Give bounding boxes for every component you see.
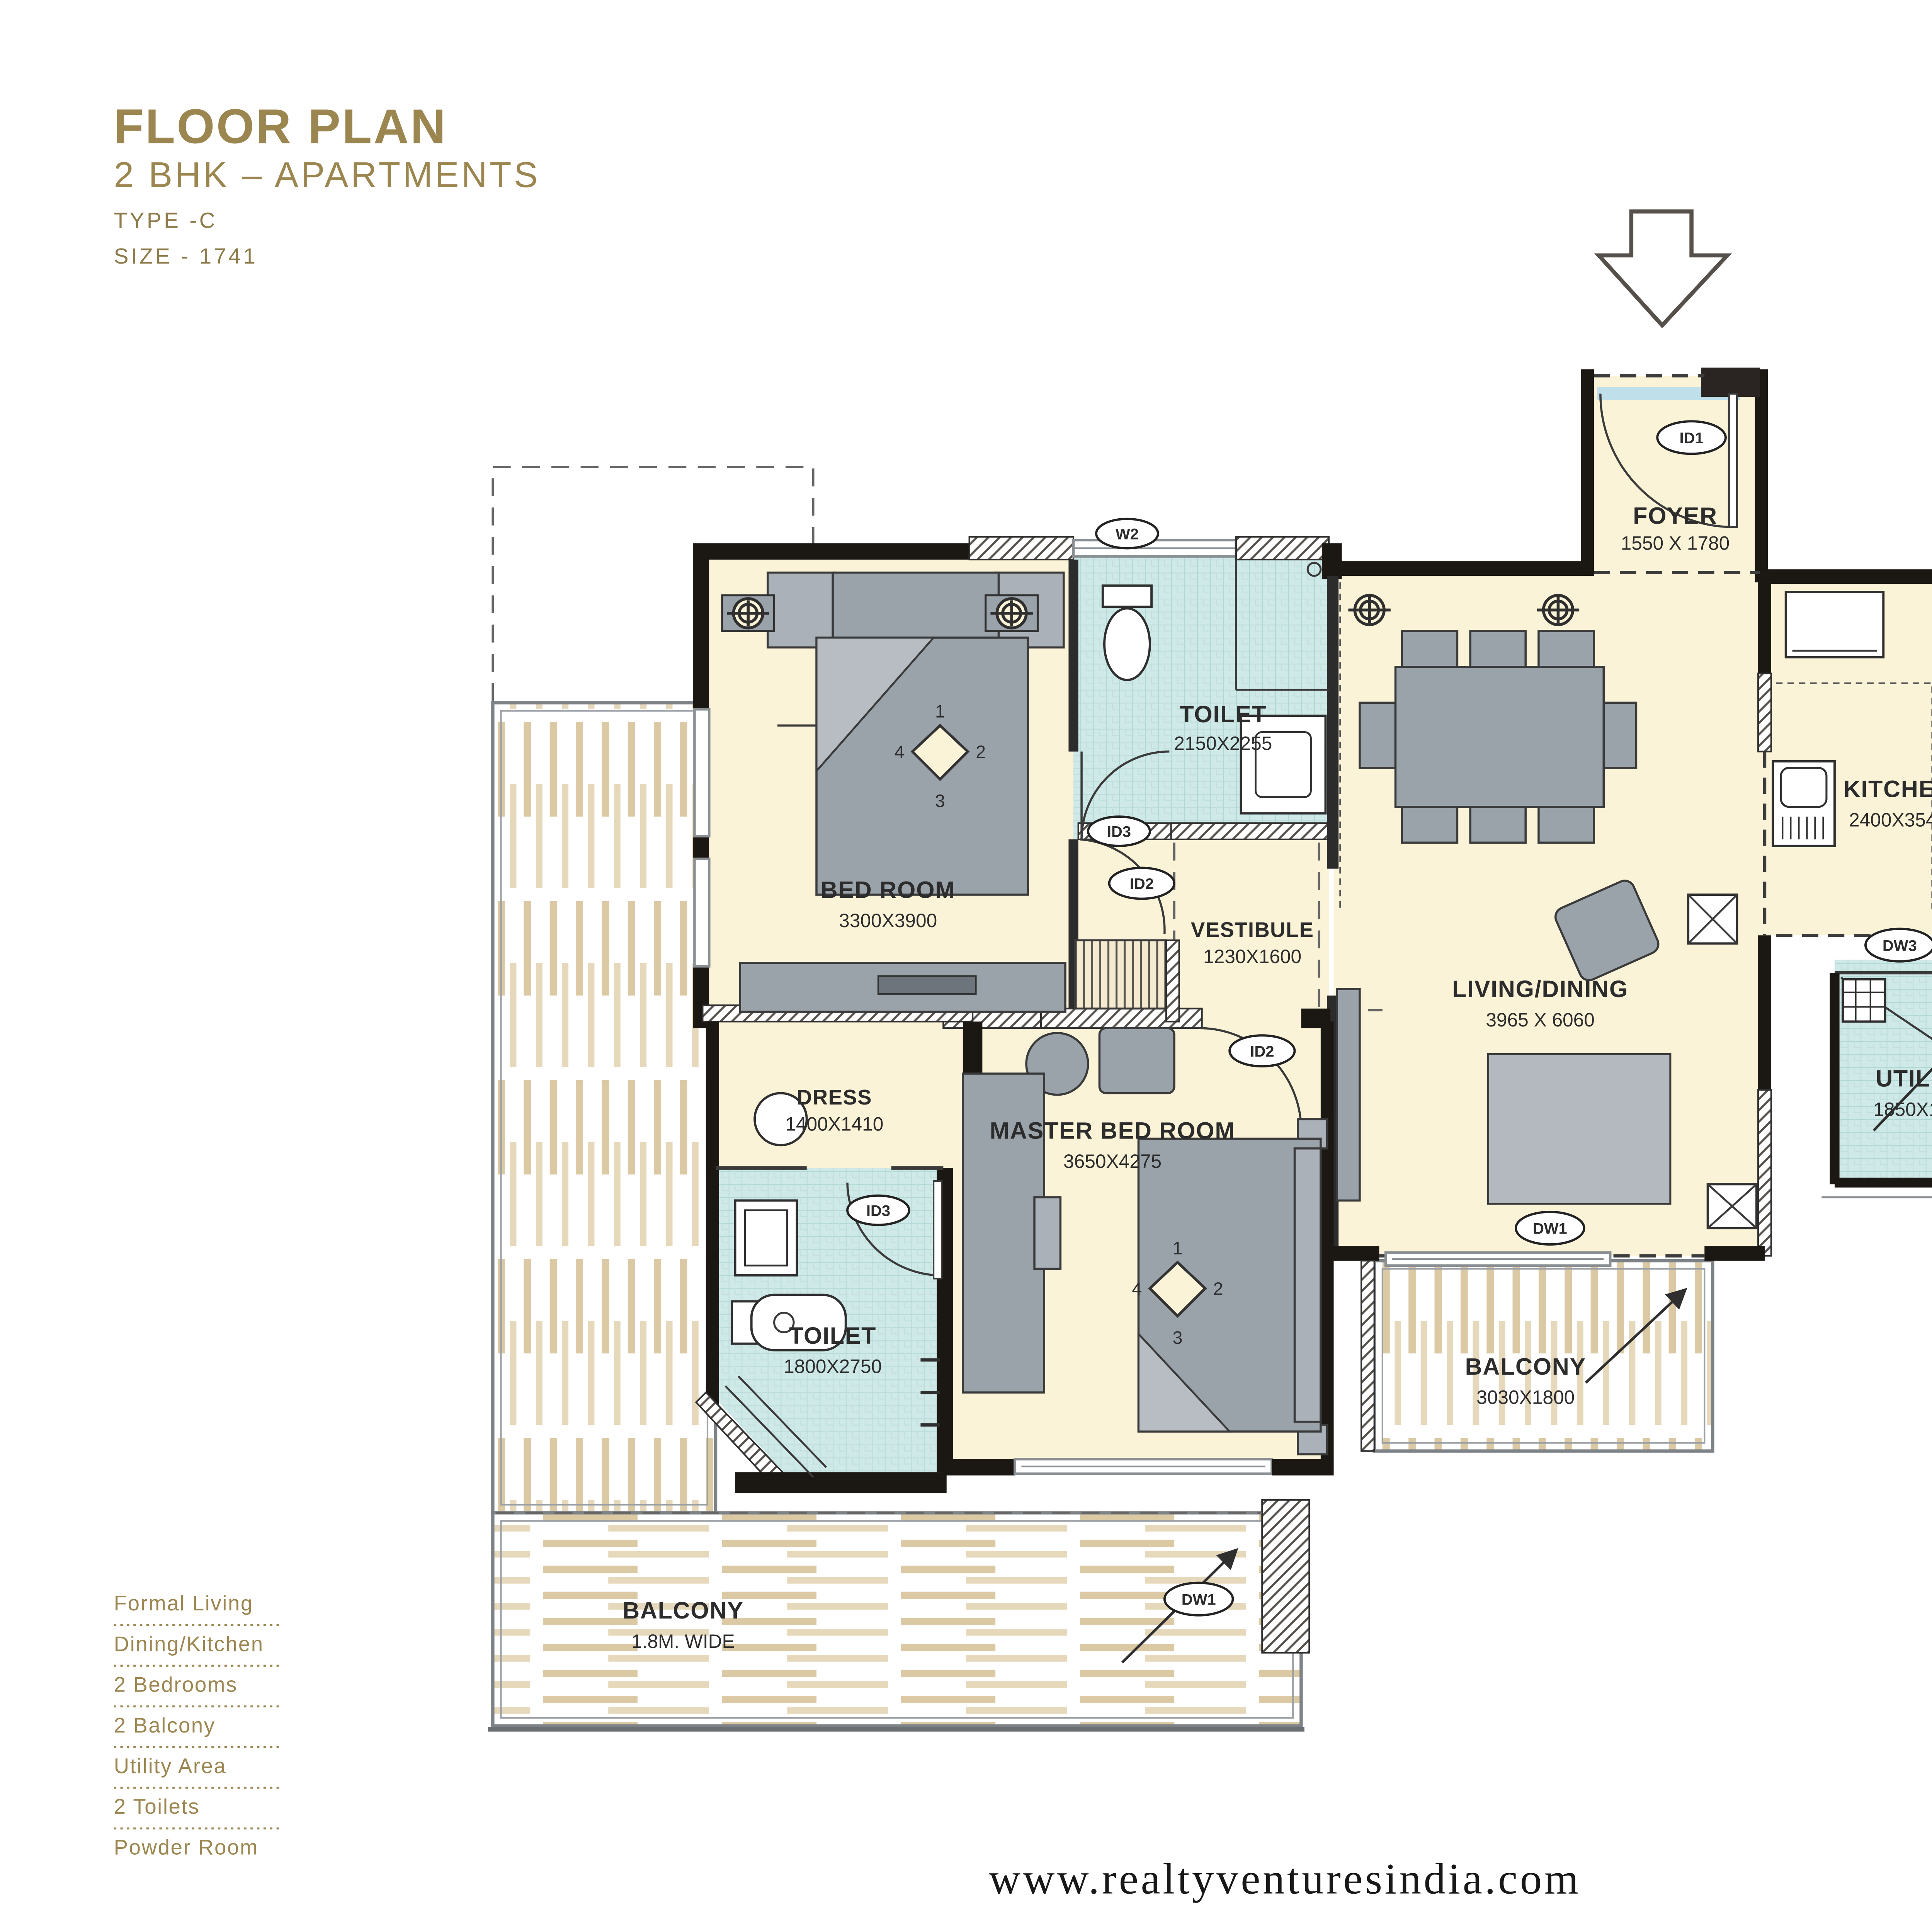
foyer-dim: 1550 X 1780 xyxy=(1621,533,1730,554)
toilet2-dim: 1800X2750 xyxy=(784,1356,882,1377)
features-list: Formal Living Dining/Kitchen 2 Bedrooms … xyxy=(114,1591,282,1859)
fan-mark-2: 2 xyxy=(976,742,986,762)
svg-text:ID1: ID1 xyxy=(1679,430,1703,447)
vestibule-label: VESTIBULE xyxy=(1191,917,1314,941)
toilet2-label: TOILET xyxy=(789,1322,876,1349)
feature-item-utility: Utility Area xyxy=(114,1754,227,1778)
fan-mark-3: 3 xyxy=(935,791,945,811)
page-title: FLOOR PLAN xyxy=(114,99,447,153)
tag-w2: W2 xyxy=(1096,519,1158,548)
master-bedroom-dim: 3650X4275 xyxy=(1063,1151,1162,1172)
floor-plan-drawing: 1 2 3 4 xyxy=(488,368,1932,1729)
utility-dim: 1850X1800 xyxy=(1873,1099,1932,1120)
toilet1-label: TOILET xyxy=(1179,701,1267,727)
kitchen-label: KITCHEN xyxy=(1844,776,1932,802)
type-label: TYPE -C xyxy=(114,208,218,233)
svg-text:ID3: ID3 xyxy=(1107,824,1131,841)
tag-id2-vestibule: ID2 xyxy=(1109,868,1174,899)
tag-dw3: DW3 xyxy=(1866,929,1932,961)
svg-text:DW3: DW3 xyxy=(1883,937,1917,954)
website-url: www.realtyventuresindia.com xyxy=(989,1854,1581,1903)
bedroom-label: BED ROOM xyxy=(821,877,956,903)
feature-item-powder-room: Powder Room xyxy=(114,1835,259,1859)
feature-item-formal-living: Formal Living xyxy=(114,1591,253,1615)
feature-item-bedrooms: 2 Bedrooms xyxy=(114,1673,238,1697)
svg-text:W2: W2 xyxy=(1116,526,1139,543)
foyer-label: FOYER xyxy=(1633,502,1718,529)
fan-mark-3: 3 xyxy=(1173,1328,1183,1348)
dress-label: DRESS xyxy=(797,1085,872,1109)
side-balcony-dim: 3030X1800 xyxy=(1476,1387,1575,1408)
entrance-arrow-icon xyxy=(1599,211,1728,325)
feature-item-dining-kitchen: Dining/Kitchen xyxy=(114,1632,264,1656)
feature-item-toilets: 2 Toilets xyxy=(114,1794,200,1818)
bottom-balcony-dim: 1.8M. WIDE xyxy=(631,1630,735,1652)
size-label: SIZE - 1741 xyxy=(114,244,258,269)
bottom-balcony-label: BALCONY xyxy=(622,1597,743,1624)
fan-mark-1: 1 xyxy=(1173,1238,1183,1258)
title-block: FLOOR PLAN 2 BHK – APARTMENTS TYPE -C SI… xyxy=(114,99,540,268)
utility-label: UTILITY xyxy=(1876,1065,1932,1092)
bedroom-dim: 3300X3900 xyxy=(839,910,937,931)
toilet1-dim: 2150X2255 xyxy=(1174,732,1272,754)
svg-text:DW1: DW1 xyxy=(1182,1591,1216,1608)
feature-item-balcony: 2 Balcony xyxy=(114,1713,216,1737)
tag-id1: ID1 xyxy=(1657,421,1726,454)
floor-plan-page: FLOOR PLAN 2 BHK – APARTMENTS TYPE -C SI… xyxy=(0,0,1932,1913)
vestibule-dim: 1230X1600 xyxy=(1203,946,1301,967)
formal-living-terrace xyxy=(493,703,716,1513)
tag-dw1-bottom: DW1 xyxy=(1165,1583,1233,1615)
kitchen-dim: 2400X3540 xyxy=(1849,809,1932,831)
floor-plan-canvas: FLOOR PLAN 2 BHK – APARTMENTS TYPE -C SI… xyxy=(0,0,1932,1913)
page-subtitle: 2 BHK – APARTMENTS xyxy=(114,155,540,195)
svg-text:ID2: ID2 xyxy=(1250,1043,1274,1060)
master-bedroom-label: MASTER BED ROOM xyxy=(990,1117,1235,1144)
fan-mark-1: 1 xyxy=(935,701,945,721)
tag-dw1-side: DW1 xyxy=(1516,1212,1584,1244)
dress-dim: 1400X1410 xyxy=(785,1113,883,1135)
tag-id3-toilet1: ID3 xyxy=(1088,817,1150,846)
fan-mark-4: 4 xyxy=(1132,1279,1142,1299)
tag-id3-toilet2: ID3 xyxy=(847,1196,909,1225)
svg-text:ID2: ID2 xyxy=(1130,875,1154,892)
svg-text:DW1: DW1 xyxy=(1533,1220,1567,1237)
fan-mark-4: 4 xyxy=(895,742,905,762)
tag-id2-master: ID2 xyxy=(1230,1035,1294,1066)
side-balcony-label: BALCONY xyxy=(1465,1353,1586,1380)
living-dim: 3965 X 6060 xyxy=(1486,1009,1595,1031)
fan-mark-2: 2 xyxy=(1213,1279,1223,1299)
bottom-balcony xyxy=(488,1513,1304,1729)
living-label: LIVING/DINING xyxy=(1452,976,1628,1002)
svg-text:ID3: ID3 xyxy=(866,1202,890,1219)
